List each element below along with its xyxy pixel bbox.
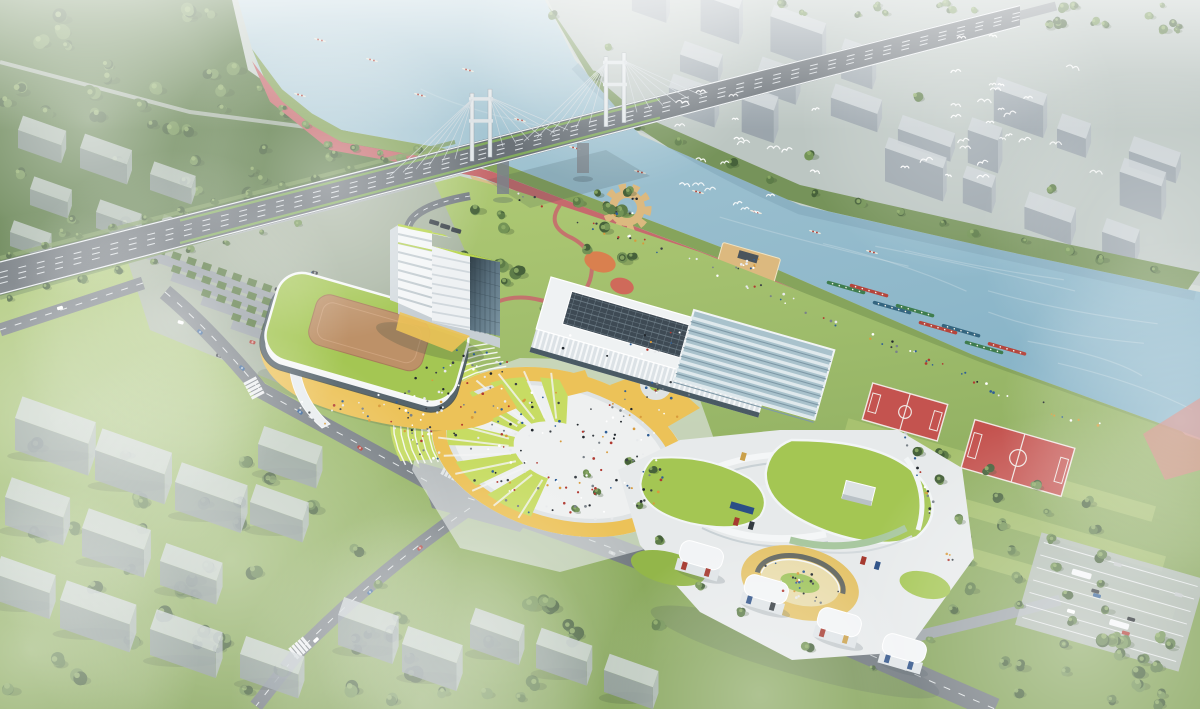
person: [600, 469, 602, 471]
person: [645, 386, 648, 389]
person: [514, 433, 517, 436]
person: [644, 334, 646, 336]
person: [610, 487, 612, 489]
person: [456, 349, 458, 351]
person: [629, 237, 631, 239]
person: [439, 407, 442, 410]
person: [804, 312, 806, 314]
person: [422, 413, 424, 415]
person: [591, 485, 594, 488]
person: [531, 402, 533, 404]
person: [659, 468, 662, 471]
person: [606, 451, 608, 453]
person: [529, 402, 531, 404]
person: [626, 485, 628, 487]
person: [633, 503, 635, 505]
person: [780, 299, 782, 301]
person: [663, 413, 665, 415]
person: [425, 367, 427, 369]
person: [640, 416, 642, 418]
person: [499, 363, 501, 365]
person: [442, 406, 444, 408]
person: [495, 361, 498, 364]
person: [420, 419, 422, 421]
person: [623, 415, 625, 417]
person: [642, 422, 644, 424]
person: [961, 373, 963, 375]
person: [593, 222, 595, 224]
person: [932, 364, 934, 366]
person: [579, 482, 581, 484]
person: [582, 436, 585, 439]
person: [646, 349, 648, 351]
person: [925, 360, 927, 362]
person: [477, 437, 479, 439]
person: [617, 236, 619, 238]
person: [440, 401, 443, 404]
person: [689, 258, 691, 260]
person: [443, 367, 445, 369]
circle-shape: [915, 448, 919, 452]
person: [481, 392, 484, 395]
person: [655, 459, 657, 461]
person: [752, 267, 754, 269]
person: [669, 381, 671, 383]
person: [426, 400, 428, 402]
person: [425, 408, 427, 410]
person: [620, 421, 622, 423]
person: [557, 402, 559, 404]
person: [916, 467, 919, 470]
person: [611, 406, 613, 408]
person: [624, 390, 626, 392]
person: [928, 359, 931, 362]
person: [746, 260, 749, 263]
person: [640, 500, 643, 503]
person: [471, 364, 473, 366]
person: [605, 338, 607, 340]
person: [679, 332, 681, 334]
person: [662, 388, 664, 390]
person: [452, 361, 455, 364]
person: [454, 434, 457, 437]
person: [515, 383, 517, 385]
person: [753, 264, 755, 266]
person: [438, 451, 441, 454]
person: [881, 343, 883, 345]
person: [594, 487, 597, 490]
person: [737, 268, 739, 270]
person: [657, 490, 660, 493]
person: [629, 414, 631, 416]
person: [650, 341, 652, 343]
person: [407, 412, 409, 414]
person: [430, 430, 432, 432]
person: [408, 390, 411, 393]
person: [964, 372, 966, 374]
person: [942, 363, 944, 365]
person: [834, 325, 836, 327]
person: [630, 408, 632, 410]
person: [916, 474, 918, 476]
person: [830, 320, 833, 323]
person: [427, 433, 430, 436]
circle-shape: [501, 225, 505, 229]
person: [716, 274, 718, 276]
person: [517, 421, 520, 424]
circle-shape: [595, 190, 598, 193]
person: [740, 263, 743, 266]
person: [447, 392, 449, 394]
person: [635, 197, 638, 200]
person: [555, 392, 557, 394]
person: [630, 343, 632, 345]
person: [509, 449, 512, 452]
person: [603, 233, 605, 235]
person: [592, 435, 594, 437]
person: [504, 400, 507, 403]
person: [782, 293, 785, 296]
person: [653, 502, 655, 504]
person: [890, 346, 892, 348]
person: [520, 413, 522, 415]
aerial-render-canvas: [0, 0, 1200, 709]
person: [642, 488, 645, 491]
person: [560, 440, 562, 442]
person: [463, 404, 465, 406]
person: [615, 479, 618, 482]
person: [441, 392, 443, 394]
person: [487, 448, 489, 450]
person: [595, 223, 597, 225]
person: [625, 459, 628, 462]
person: [577, 424, 579, 426]
person: [542, 432, 544, 434]
circle-shape: [629, 253, 632, 256]
person: [654, 350, 657, 353]
person: [497, 421, 499, 423]
person: [493, 405, 495, 407]
person: [925, 362, 928, 365]
person: [754, 286, 756, 288]
top-haze: [0, 0, 1200, 130]
person: [904, 436, 906, 438]
person: [598, 442, 600, 444]
person: [642, 471, 644, 473]
person: [414, 377, 417, 380]
person: [656, 252, 658, 254]
person: [906, 444, 908, 446]
person: [486, 351, 488, 353]
person: [528, 435, 530, 437]
person: [758, 258, 760, 260]
person: [651, 382, 653, 384]
circle-shape: [938, 450, 942, 454]
person: [585, 474, 587, 476]
person: [643, 499, 645, 501]
person: [745, 285, 747, 287]
person: [555, 425, 557, 427]
person: [453, 432, 455, 434]
person: [521, 422, 523, 424]
person: [895, 350, 898, 353]
person: [569, 334, 572, 337]
person: [592, 457, 595, 460]
person: [644, 239, 646, 241]
person: [531, 391, 534, 394]
person: [976, 381, 978, 383]
person: [615, 212, 618, 215]
mist-patch: [10, 150, 350, 490]
person: [423, 397, 426, 400]
bridge-pier: [497, 160, 509, 194]
person: [688, 394, 690, 396]
person: [500, 408, 502, 410]
person: [592, 228, 594, 230]
person: [501, 388, 503, 390]
person: [753, 259, 755, 261]
person: [973, 381, 975, 383]
person: [623, 408, 625, 410]
person: [508, 405, 510, 407]
person: [634, 239, 636, 241]
circle-shape: [649, 467, 652, 470]
circle-shape: [813, 191, 816, 194]
circle-shape: [620, 255, 625, 260]
person: [628, 235, 630, 237]
person: [610, 442, 613, 445]
person: [891, 340, 893, 342]
person: [992, 391, 995, 394]
person: [614, 434, 616, 436]
person: [509, 423, 512, 426]
circle-shape: [601, 225, 605, 229]
person: [471, 416, 474, 419]
person: [735, 267, 737, 269]
person: [985, 382, 988, 385]
person: [531, 429, 534, 432]
person: [648, 474, 650, 476]
person: [490, 372, 493, 375]
person: [642, 242, 644, 244]
person: [520, 450, 522, 452]
person: [823, 317, 825, 319]
person: [909, 350, 911, 352]
person: [437, 458, 439, 460]
person: [660, 479, 663, 482]
person: [696, 258, 698, 260]
person: [590, 408, 592, 410]
person: [404, 392, 406, 394]
person: [760, 284, 762, 286]
person: [442, 388, 444, 390]
person: [613, 437, 615, 439]
person: [784, 302, 786, 304]
circle-shape: [498, 212, 501, 215]
person: [745, 262, 748, 265]
person: [476, 365, 478, 367]
person: [522, 399, 525, 402]
person: [606, 420, 608, 422]
person: [654, 389, 656, 391]
person: [670, 342, 672, 344]
person: [525, 461, 527, 463]
person: [636, 439, 639, 442]
person: [663, 366, 665, 368]
person: [440, 409, 443, 412]
person: [640, 439, 642, 441]
person: [612, 416, 614, 418]
person: [531, 406, 534, 409]
person: [522, 196, 524, 198]
person: [597, 494, 599, 496]
person: [712, 266, 714, 268]
person: [656, 392, 658, 394]
person: [410, 414, 413, 417]
person: [519, 199, 521, 201]
person: [517, 193, 519, 195]
person: [501, 433, 504, 436]
person: [632, 459, 634, 461]
person: [431, 433, 433, 435]
person: [606, 355, 608, 357]
person: [462, 355, 464, 357]
person: [582, 431, 584, 433]
person: [650, 489, 652, 491]
person: [484, 376, 486, 378]
person: [490, 427, 493, 430]
person: [872, 333, 875, 336]
person: [629, 212, 631, 214]
person: [628, 487, 630, 489]
person: [536, 462, 538, 464]
person: [474, 411, 476, 413]
person: [670, 332, 672, 334]
person: [793, 298, 795, 300]
person: [642, 453, 644, 455]
person: [631, 487, 633, 489]
person: [505, 434, 508, 437]
person: [413, 395, 415, 397]
person: [915, 350, 917, 352]
person: [460, 406, 462, 408]
person: [562, 347, 565, 350]
person: [458, 384, 460, 386]
person: [896, 345, 898, 347]
person: [657, 388, 659, 390]
person: [593, 449, 595, 451]
person: [444, 370, 447, 373]
person: [914, 457, 916, 459]
person: [661, 476, 663, 478]
circle-shape: [583, 246, 586, 249]
person: [653, 432, 655, 434]
person: [582, 456, 584, 458]
person: [594, 493, 596, 495]
person: [640, 353, 643, 356]
person: [498, 444, 501, 447]
person: [869, 338, 871, 340]
pier-reflection: [493, 197, 513, 203]
person: [656, 383, 659, 386]
person: [461, 424, 463, 426]
person: [541, 205, 543, 207]
person: [770, 295, 772, 297]
person: [919, 471, 921, 473]
person: [473, 353, 475, 355]
person: [636, 456, 638, 458]
circle-shape: [606, 203, 611, 208]
person: [431, 379, 433, 381]
person: [647, 434, 650, 437]
person: [611, 517, 614, 520]
person: [631, 212, 633, 214]
person: [497, 407, 499, 409]
circle-shape: [637, 502, 640, 505]
person: [429, 426, 431, 428]
person: [501, 371, 503, 373]
person: [577, 222, 579, 224]
person: [619, 409, 622, 412]
person: [466, 382, 468, 384]
person: [591, 489, 593, 491]
person: [558, 420, 561, 423]
circle-shape: [514, 268, 519, 273]
person: [450, 364, 452, 366]
person: [743, 264, 745, 266]
person: [602, 436, 604, 438]
person: [470, 448, 472, 450]
person: [657, 349, 659, 351]
person: [503, 446, 505, 448]
person: [472, 368, 475, 371]
person: [503, 430, 505, 432]
person: [436, 411, 438, 413]
scene-root: [0, 0, 1200, 709]
person: [624, 398, 626, 400]
person: [612, 403, 614, 405]
person: [491, 424, 493, 426]
circle-shape: [502, 278, 506, 282]
person: [609, 404, 611, 406]
person: [542, 396, 544, 398]
person: [426, 428, 428, 430]
person: [574, 476, 577, 479]
circle-shape: [574, 197, 578, 201]
person: [605, 431, 608, 434]
person: [660, 247, 662, 249]
person: [835, 321, 838, 324]
person: [998, 394, 1000, 396]
person: [670, 397, 673, 400]
person: [646, 396, 648, 398]
person: [534, 196, 536, 198]
person: [633, 428, 636, 431]
person: [603, 511, 605, 513]
person: [489, 387, 491, 389]
person: [631, 198, 633, 200]
person: [676, 416, 678, 418]
person: [989, 390, 992, 393]
person: [658, 409, 660, 411]
circle-shape: [655, 537, 659, 541]
person: [506, 361, 508, 363]
person: [438, 391, 441, 394]
person: [624, 482, 626, 484]
circle-shape: [768, 176, 771, 179]
person: [549, 430, 551, 432]
person: [750, 267, 752, 269]
